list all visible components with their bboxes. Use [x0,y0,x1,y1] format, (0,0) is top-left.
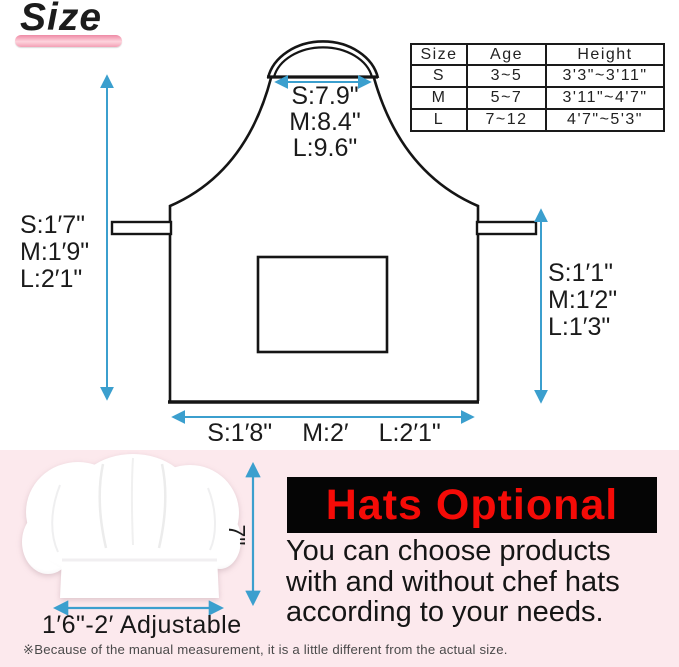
side-size-m: M:1′9" [20,239,89,266]
neck-size-s: S:7.9" [255,83,395,109]
neck-size-m: M:8.4" [255,109,395,135]
cell-size: M [411,87,467,109]
hats-optional-description: You can choose products with and without… [286,536,620,628]
skirt-size-s: S:1′1" [548,260,617,287]
size-table-header-row: Size Age Height [411,44,664,65]
description-line: according to your needs. [286,597,620,628]
cell-age: 7~12 [467,109,546,131]
chef-hat-section: 7" 1′6"-2′ Adjustable Hats Optional You … [0,450,679,667]
apron-right-waist-tie [477,222,536,234]
neck-size-l: L:9.6" [255,135,395,161]
side-length-labels: S:1′7" M:1′9" L:2′1" [20,212,89,293]
hat-height-label: 7" [224,510,250,560]
cell-age: 5~7 [467,87,546,109]
neck-width-labels: S:7.9" M:8.4" L:9.6" [255,83,395,161]
skirt-length-labels: S:1′1" M:1′2" L:1′3" [548,260,617,341]
product-size-infographic: Size [0,0,679,667]
header-size: Size [411,44,467,65]
skirt-size-l: L:1′3" [548,314,617,341]
description-line: You can choose products [286,536,620,567]
cell-height: 3'3"~3'11" [546,65,664,87]
table-row: M 5~7 3'11"~4'7" [411,87,664,109]
measurement-disclaimer: ※Because of the manual measurement, it i… [23,642,508,658]
cell-height: 4'7"~5'3" [546,109,664,131]
table-row: L 7~12 4'7"~5'3" [411,109,664,131]
hat-band-label: 1′6"-2′ Adjustable [42,611,242,640]
apron-pocket [258,257,387,352]
bottom-width-labels: S:1′8" M:2′ L:2′1" [170,420,478,447]
skirt-size-m: M:1′2" [548,287,617,314]
apron-size-diagram: Size [0,0,679,450]
description-line: with and without chef hats [286,567,620,598]
bottom-size-s: S:1′8" [207,420,272,447]
hats-optional-title: Hats Optional [326,481,619,530]
cell-size: L [411,109,467,131]
side-size-s: S:1′7" [20,212,89,239]
chef-hat-band [60,556,219,598]
bottom-size-l: L:2′1" [379,420,441,447]
bottom-size-m: M:2′ [302,420,348,447]
chef-hat [22,454,241,598]
cell-age: 3~5 [467,65,546,87]
apron-left-waist-tie [112,222,171,234]
header-age: Age [467,44,546,65]
hats-optional-banner: Hats Optional [287,477,657,533]
table-row: S 3~5 3'3"~3'11" [411,65,664,87]
cell-height: 3'11"~4'7" [546,87,664,109]
cell-size: S [411,65,467,87]
side-size-l: L:2′1" [20,266,89,293]
size-chart-table: Size Age Height S 3~5 3'3"~3'11" M 5~7 3… [410,43,665,132]
header-height: Height [546,44,664,65]
